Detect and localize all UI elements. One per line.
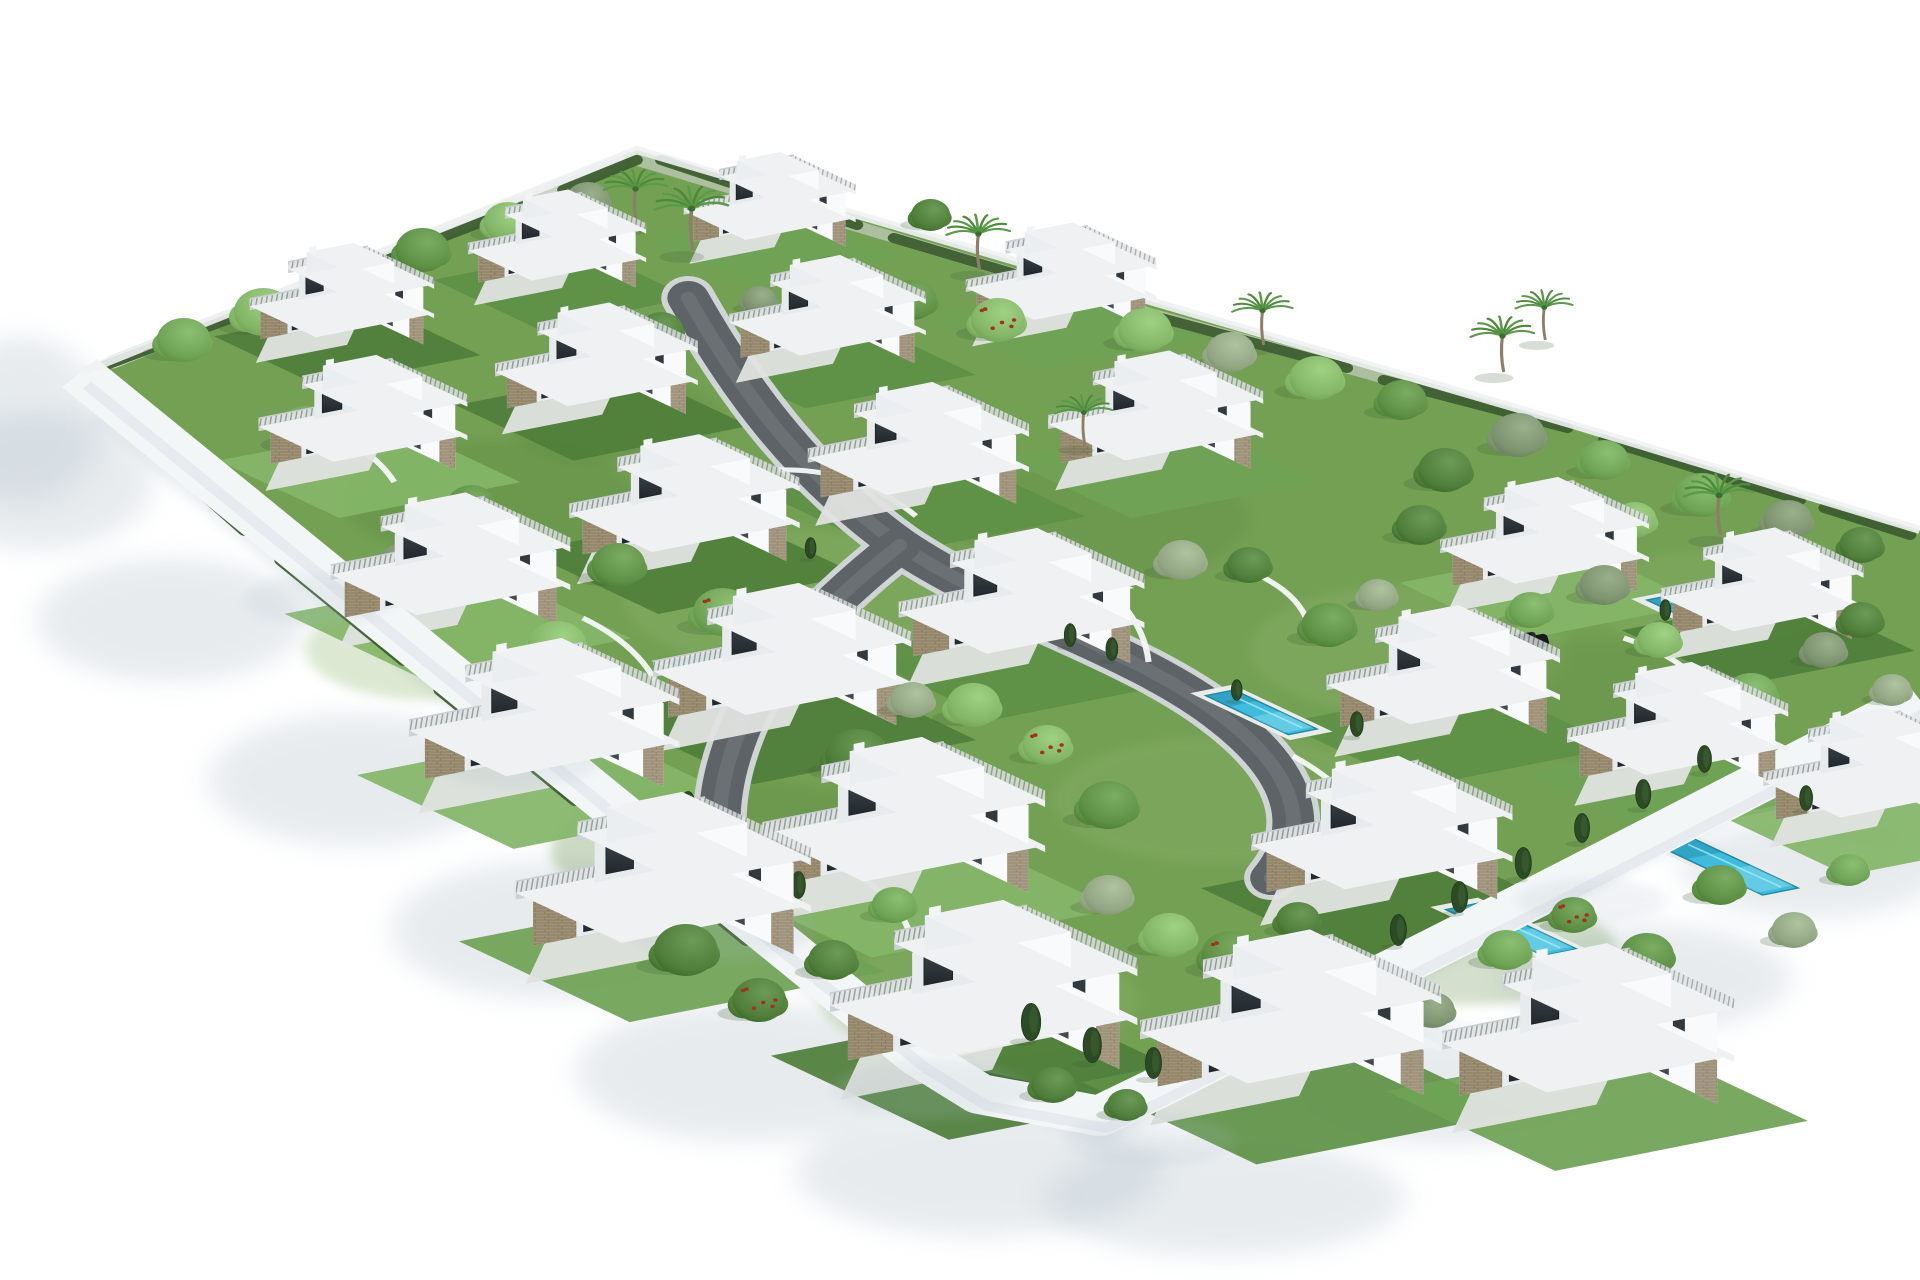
tree (900, 199, 952, 231)
villa-development-render (0, 0, 1920, 1280)
palm-tree (1471, 317, 1534, 383)
wall-band-shadow (833, 1060, 1029, 1120)
wall-band-shadow (1065, 1114, 1236, 1166)
cast-shadow (37, 558, 306, 682)
palm-tree (1516, 290, 1573, 350)
olive-tree (1760, 912, 1818, 948)
site-render (0, 0, 1920, 1280)
